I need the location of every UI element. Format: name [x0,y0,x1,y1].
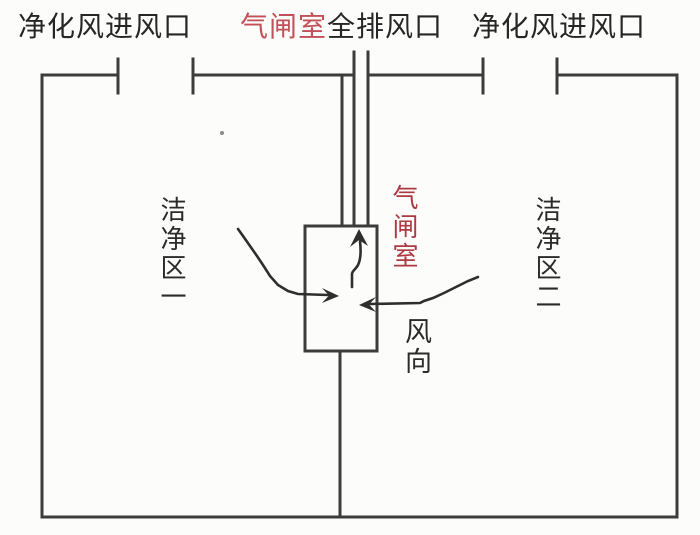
up-arrow-head [350,229,368,247]
airflow-arrows [238,229,478,312]
label-inlet-left-text: 净化风进风口 [18,10,192,43]
label-inlet-right: 净化风进风口 [472,12,646,43]
diagram-canvas [0,0,700,535]
left-inflow-arrow [238,229,339,303]
label-inlet-left: 净化风进风口 [18,12,192,43]
right-arrow-line [370,277,478,304]
label-airlock-room: 气闸室 [390,184,416,271]
label-exhaust-black: 全排风口 [327,10,443,43]
label-cleanroom-one: 洁净区一 [158,196,184,312]
diagram-stage: 净化风进风口 气闸室全排风口 净化风进风口 洁净区一 洁净区二 气闸室 风向 [0,0,700,535]
label-airlock-top-red: 气闸室 [240,10,327,43]
up-arrow-shaft [352,241,361,287]
exhaust-duct [342,52,368,226]
label-cleanroom-two: 洁净区二 [533,196,559,312]
room-outline [42,75,677,517]
label-wind-direction: 风向 [402,317,429,377]
label-exhaust-center: 气闸室全排风口 [240,12,443,43]
up-exhaust-arrow [350,229,368,287]
label-inlet-right-text: 净化风进风口 [472,10,646,43]
left-arrow-line [238,229,328,295]
stray-dot [220,131,224,135]
